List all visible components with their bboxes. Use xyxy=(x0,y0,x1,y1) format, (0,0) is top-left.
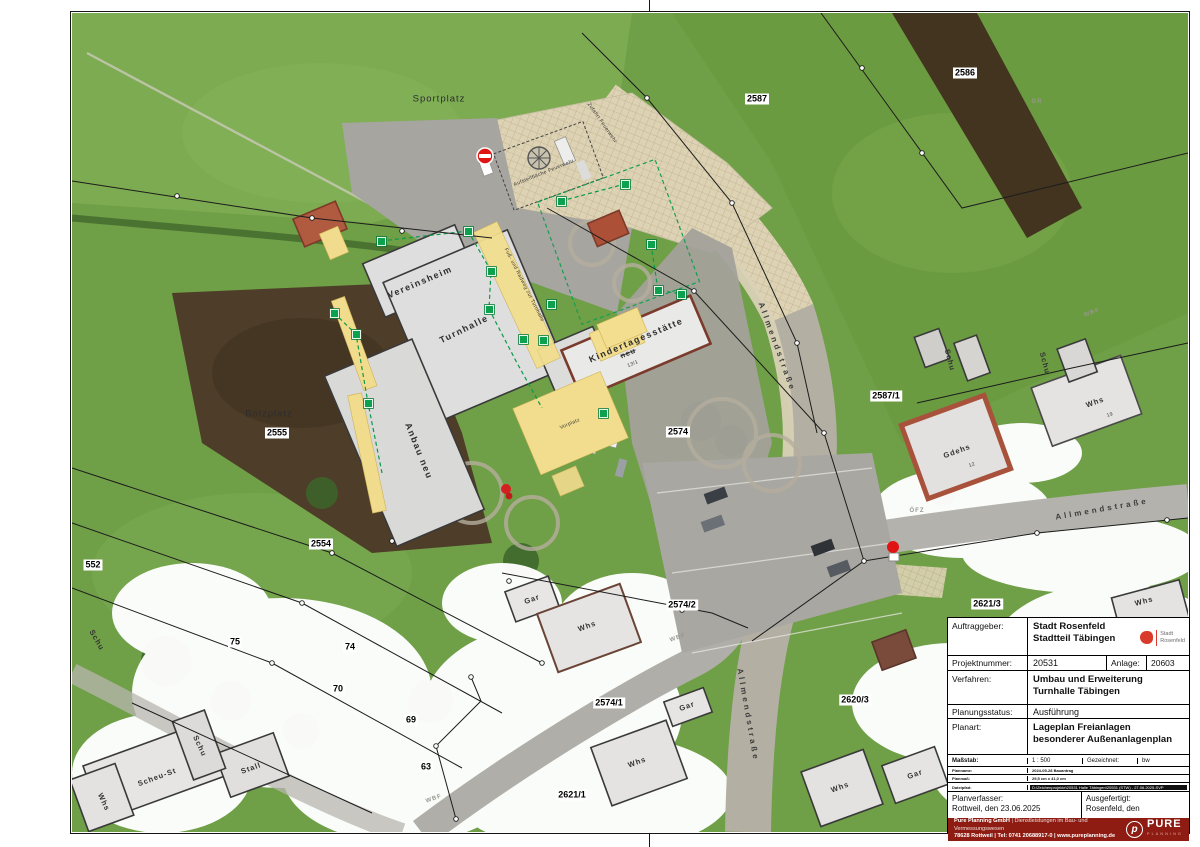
parcel-63: 63 xyxy=(419,762,433,773)
status-label: Planungsstatus: xyxy=(948,705,1028,718)
survey-marker-icon xyxy=(520,336,527,343)
survey-marker-icon xyxy=(353,331,360,338)
survey-marker-icon xyxy=(540,337,547,344)
survey-marker-icon xyxy=(365,400,372,407)
survey-marker-icon xyxy=(488,268,495,275)
plansize-value: 29,5 cm x 41,0 cm xyxy=(1028,776,1066,781)
parcel-2586: 2586 xyxy=(953,68,977,79)
parcel-2621-3: 2621/3 xyxy=(971,599,1003,610)
code-gr: GR xyxy=(1032,99,1043,105)
parcel-2620-3: 2620/3 xyxy=(839,695,871,706)
red-object xyxy=(501,484,511,494)
plantype-label: Planart: xyxy=(948,719,1028,754)
label-sportplatz: Sportplatz xyxy=(413,94,466,105)
parcel-2587-1: 2587/1 xyxy=(870,391,902,402)
survey-marker-icon xyxy=(600,410,607,417)
issued-cell: Ausgefertigt: Rosenfeld, den xyxy=(1081,792,1189,818)
parcel-2621-1: 2621/1 xyxy=(556,790,588,801)
procedure-value: Umbau und Erweiterung Turnhalle Täbingen xyxy=(1028,671,1189,704)
survey-marker-icon xyxy=(678,291,685,298)
scale-label: Maßstab: xyxy=(948,758,1028,764)
survey-marker-icon xyxy=(558,198,565,205)
survey-marker-icon xyxy=(655,287,662,294)
title-block-author-row: Planverfasser: Rottweil, den 23.06.2025 … xyxy=(948,792,1189,818)
title-block-client-row: Auftraggeber: Stadt Rosenfeld Stadtteil … xyxy=(948,618,1189,656)
plantype-value: Lageplan Freianlagen besonderer Außenanl… xyxy=(1028,719,1189,754)
parcel-2555: 2555 xyxy=(265,428,289,439)
filepath-value: D:\Zeichenprojekte\20531 Halle Täbingen\… xyxy=(1030,785,1187,790)
anlage-value: 20603 xyxy=(1147,656,1189,670)
parcel-70: 70 xyxy=(331,684,345,695)
drawn-by-value: bw xyxy=(1138,758,1189,764)
filepath-label: Dateipfad: xyxy=(948,785,1028,790)
stadt-rosenfeld-logo: Stadt Rosenfeld xyxy=(1140,618,1189,655)
plan-sheet: SportplatzBolzplatz258725862587/12555255… xyxy=(0,0,1200,847)
plansize-label: Planmaß: xyxy=(948,776,1028,781)
red-point-marker-icon xyxy=(887,541,899,553)
parcel-2587: 2587 xyxy=(745,94,769,105)
status-value: Ausführung xyxy=(1028,705,1189,718)
client-label: Auftraggeber: xyxy=(948,618,1028,655)
title-block: Auftraggeber: Stadt Rosenfeld Stadtteil … xyxy=(947,617,1190,833)
pure-planning-logo: p PUREPLANNING xyxy=(1126,819,1183,839)
survey-marker-icon xyxy=(378,238,385,245)
scale-value: 1 : 500 xyxy=(1028,758,1083,764)
survey-marker-icon xyxy=(622,181,629,188)
fold-tick-bottom xyxy=(649,833,650,847)
parcel-75: 75 xyxy=(228,637,242,648)
label-bolzplatz: Bolzplatz xyxy=(245,409,293,420)
pure-planning-footer: Pure Planning GmbH | Dienstleistungen im… xyxy=(948,818,1189,841)
footer-text: Pure Planning GmbH | Dienstleistungen im… xyxy=(954,818,1126,841)
survey-marker-icon xyxy=(465,228,472,235)
planname-value: 2024-05-28 Bauantrag xyxy=(1028,768,1073,773)
parcel-74: 74 xyxy=(343,642,357,653)
title-block-plantype-row: Planart: Lageplan Freianlagen besonderer… xyxy=(948,719,1189,755)
title-block-meta-rows: Maßstab: 1 : 500 Gezeichnet: bw Planname… xyxy=(948,755,1189,792)
parcel-2574-2: 2574/2 xyxy=(666,600,698,611)
fold-tick-top xyxy=(649,0,650,11)
parcel-2574-1: 2574/1 xyxy=(593,698,625,709)
client-value: Stadt Rosenfeld Stadtteil Täbingen xyxy=(1028,618,1140,655)
survey-marker-icon xyxy=(331,310,338,317)
title-block-status-row: Planungsstatus: Ausführung xyxy=(948,705,1189,719)
drawn-by-label: Gezeichnet: xyxy=(1083,758,1138,764)
parcel-2554: 2554 xyxy=(309,539,333,550)
project-number-value: 20531 xyxy=(1028,656,1107,670)
author-cell: Planverfasser: Rottweil, den 23.06.2025 xyxy=(948,792,1081,818)
project-number-label: Projektnummer: xyxy=(948,656,1028,670)
survey-marker-icon xyxy=(486,306,493,313)
survey-marker-icon xyxy=(548,301,555,308)
code-oefz: ÖFZ xyxy=(910,508,925,514)
parcel-552: 552 xyxy=(83,560,102,571)
parcel-69: 69 xyxy=(404,715,418,726)
pure-planning-logo-icon: p xyxy=(1126,821,1143,838)
title-block-procedure-row: Verfahren: Umbau und Erweiterung Turnhal… xyxy=(948,671,1189,705)
planname-label: Planname: xyxy=(948,768,1028,773)
survey-marker-icon xyxy=(648,241,655,248)
parcel-2574: 2574 xyxy=(666,427,690,438)
title-block-project-row: Projektnummer: 20531 Anlage: 20603 xyxy=(948,656,1189,671)
anlage-label: Anlage: xyxy=(1107,656,1147,670)
procedure-label: Verfahren: xyxy=(948,671,1028,704)
stadt-rosenfeld-logo-icon xyxy=(1140,631,1153,644)
